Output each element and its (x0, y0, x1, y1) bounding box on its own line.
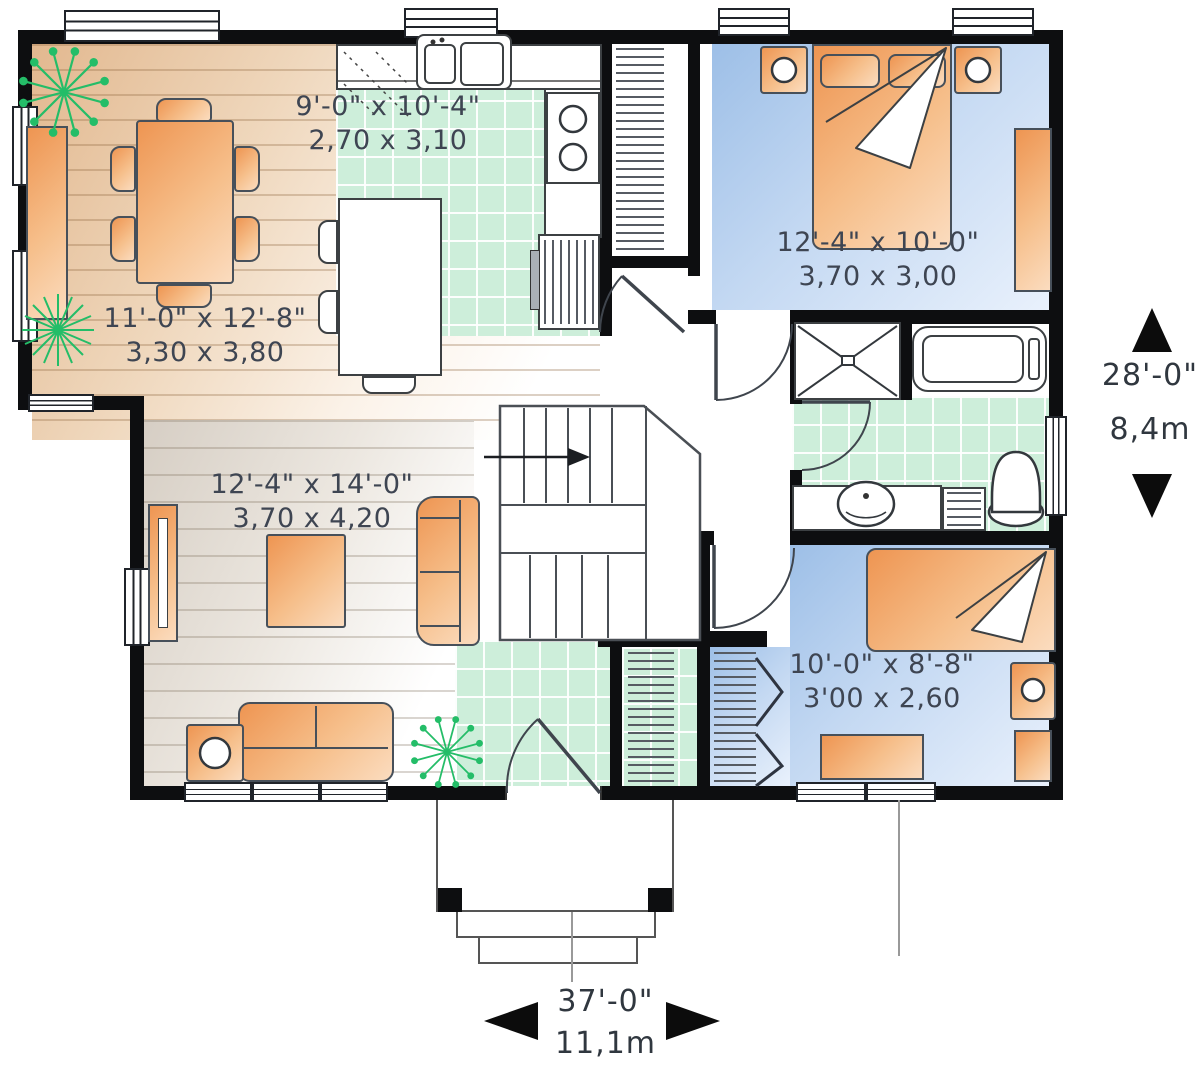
entry-tile-floor (455, 640, 612, 786)
depth-arrow-down-icon (1132, 474, 1172, 518)
window-dining-top (64, 10, 220, 42)
island-stool-2 (318, 290, 338, 334)
kitchen-sink-basin-left (424, 44, 456, 84)
refrigerator-hatch (544, 240, 594, 324)
bedroom2-metric: 3'00 x 2,60 (772, 682, 992, 716)
master-imperial: 12'-4" x 10'-0" (768, 226, 988, 260)
window-living-left (124, 568, 150, 646)
bedroom2-closet-shelves (714, 652, 756, 782)
staircase (500, 406, 700, 640)
dining-sideboard (26, 126, 68, 320)
porch-step-1 (456, 912, 656, 938)
wall-closet-bottom (612, 256, 688, 268)
wall-closet-right (688, 44, 700, 276)
wall-between-closets (697, 647, 710, 786)
window-master-top-right (952, 8, 1034, 36)
floor-plan-canvas: 9'-0" x 10'-4" 2,70 x 3,10 11'-0" x 12'-… (0, 0, 1200, 1066)
dining-chair-left-1 (110, 146, 136, 192)
master-nightstand-left (760, 46, 808, 94)
window-bedroom2-bottom-1 (796, 782, 866, 802)
bedroom2-dresser-bottom (820, 734, 924, 780)
window-bedroom2-bottom-2 (866, 782, 936, 802)
depth-arrow-up-icon (1132, 308, 1172, 352)
stove (546, 92, 600, 184)
width-arrow-right-icon (666, 1002, 720, 1040)
tv-console-slot (158, 518, 168, 628)
shower (794, 322, 901, 400)
stair-direction-arrow (484, 448, 590, 466)
living-metric: 3,70 x 4,20 (202, 502, 422, 536)
island-stool-3 (362, 376, 416, 394)
bathtub-grip (1028, 338, 1040, 380)
sofa (238, 702, 394, 782)
wall-bathroom-bedroom2 (790, 531, 1063, 545)
width-imperial: 37'-0" (538, 984, 673, 1019)
window-living-bottom-1 (184, 782, 252, 802)
bedroom2-door-swing (714, 548, 794, 628)
dining-table (136, 120, 234, 284)
bedroom2-nightstand (1010, 662, 1056, 720)
end-table (186, 724, 244, 782)
porch-step-2 (478, 938, 638, 964)
bedroom2-imperial: 10'-0" x 8'-8" (772, 648, 992, 682)
kitchen-sink-basin-right (460, 42, 504, 86)
kitchen-metric: 2,70 x 3,10 (288, 124, 488, 158)
living-imperial: 12'-4" x 14'-0" (202, 468, 422, 502)
living-dimensions-label: 12'-4" x 14'-0" 3,70 x 4,20 (202, 468, 422, 536)
bedroom2-dimensions-label: 10'-0" x 8'-8" 3'00 x 2,60 (772, 648, 992, 716)
leader-line-porch (571, 912, 573, 982)
bathroom-drawers-hatch (947, 492, 981, 526)
dining-dimensions-label: 11'-0" x 12'-8" 3,30 x 3,80 (95, 302, 315, 370)
dining-chair-right-1 (234, 146, 260, 192)
wall-entry-closet-left (610, 647, 622, 786)
porch (436, 800, 674, 912)
master-closet-shelves (616, 48, 664, 254)
wall-master-door-stub (688, 310, 716, 324)
master-pillow-left (820, 54, 880, 88)
master-metric: 3,70 x 3,00 (768, 260, 988, 294)
bathtub-inner (922, 335, 1024, 383)
master-door-swing (716, 324, 792, 400)
master-pillow-right (888, 54, 946, 88)
entry-closet-shelves (628, 652, 674, 782)
closet-door-leaf (622, 276, 684, 332)
refrigerator-handle (530, 250, 540, 310)
window-living-bottom-2 (252, 782, 320, 802)
coffee-table (266, 534, 346, 628)
window-bathroom-right (1045, 416, 1067, 516)
bedroom2-dresser-right (1014, 730, 1052, 782)
kitchen-imperial: 9'-0" x 10'-4" (288, 90, 488, 124)
window-living-bottom-3 (320, 782, 388, 802)
window-master-top-left (718, 8, 790, 36)
width-arrow-left-icon (484, 1002, 538, 1040)
master-dimensions-label: 12'-4" x 10'-0" 3,70 x 3,00 (768, 226, 988, 294)
kitchen-dimensions-label: 9'-0" x 10'-4" 2,70 x 3,10 (288, 90, 488, 158)
island-stool-1 (318, 220, 338, 264)
dining-chair-left-2 (110, 216, 136, 262)
bedroom2-bed (866, 548, 1056, 652)
kitchen-island (338, 198, 442, 376)
dining-imperial: 11'-0" x 12'-8" (95, 302, 315, 336)
width-metric: 11,1m (538, 1026, 673, 1061)
depth-imperial: 28'-0" (1095, 358, 1200, 393)
wall-bedroom2-closet-top (710, 631, 767, 647)
wall-entry-closet-top (598, 631, 710, 647)
dining-metric: 3,30 x 3,80 (95, 336, 315, 370)
refrigerator (538, 234, 600, 330)
master-nightstand-right (954, 46, 1002, 94)
leader-line-right (898, 800, 900, 956)
master-dresser (1014, 128, 1052, 292)
front-door-opening (505, 786, 602, 800)
porch-post-right (648, 888, 672, 912)
window-step-wall (28, 394, 94, 412)
dining-chair-right-2 (234, 216, 260, 262)
bathroom-drawers (942, 487, 986, 531)
porch-post-left (438, 888, 462, 912)
loveseat (416, 496, 480, 646)
wall-hall-entry-divider (697, 534, 710, 634)
dining-chair-top (156, 98, 212, 122)
bathroom-vanity (792, 485, 942, 531)
depth-metric: 8,4m (1095, 412, 1200, 447)
